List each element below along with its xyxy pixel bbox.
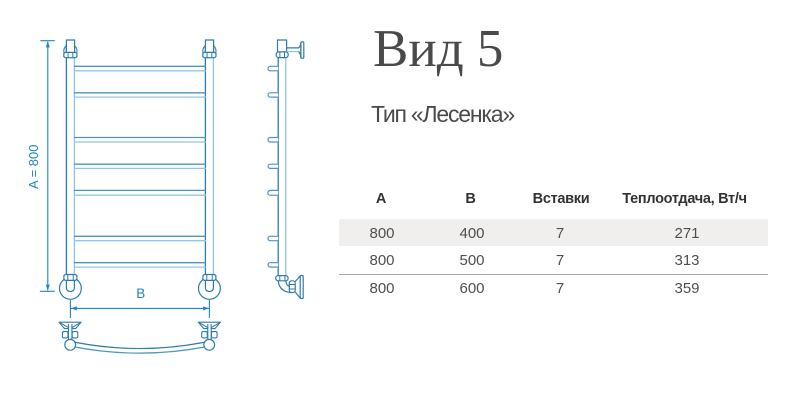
svg-text:A = 800: A = 800 — [26, 145, 41, 189]
